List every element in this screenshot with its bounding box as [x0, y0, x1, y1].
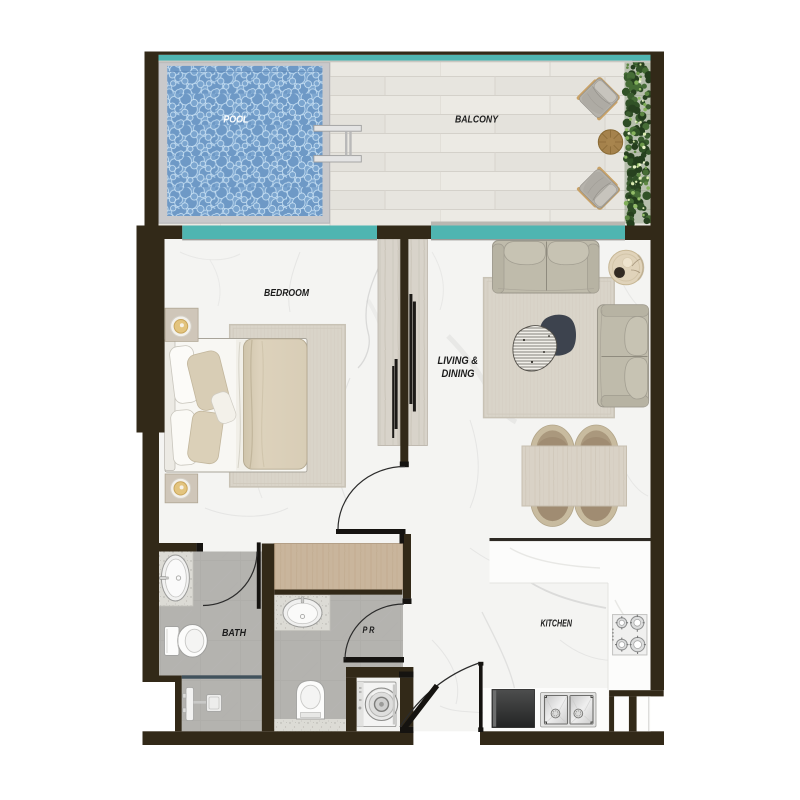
svg-text:POOL: POOL: [223, 113, 248, 125]
svg-text:P R: P R: [363, 625, 375, 635]
svg-text:KITCHEN: KITCHEN: [541, 618, 573, 629]
svg-text:BALCONY: BALCONY: [455, 113, 499, 125]
svg-text:LIVING &: LIVING &: [438, 355, 479, 367]
svg-text:BATH: BATH: [222, 628, 247, 639]
svg-text:DINING: DINING: [442, 368, 475, 380]
svg-text:BEDROOM: BEDROOM: [264, 287, 309, 299]
